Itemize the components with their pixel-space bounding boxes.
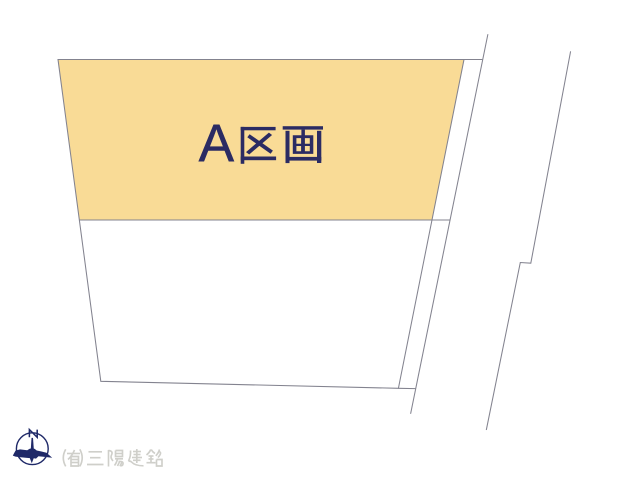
svg-text:A: A xyxy=(199,114,235,173)
